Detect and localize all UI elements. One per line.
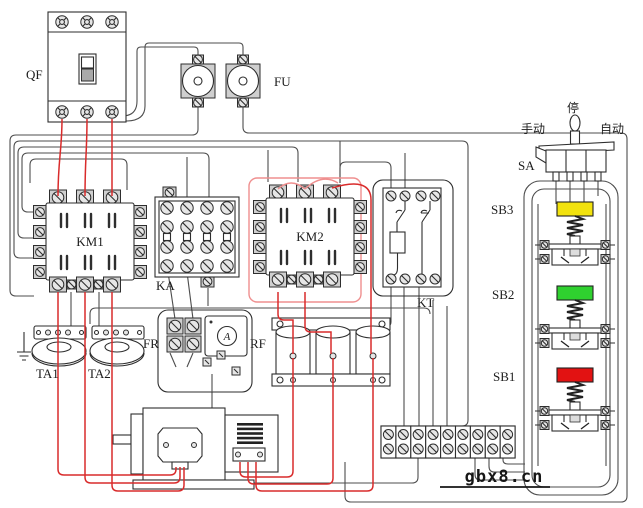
terminal-strip xyxy=(381,426,515,458)
label-ka: KA xyxy=(156,278,175,293)
label-km1: KM1 xyxy=(76,234,103,249)
label-qf: QF xyxy=(26,67,43,82)
label-km2: KM2 xyxy=(296,229,323,244)
label-kt: KT xyxy=(417,295,434,310)
watermark: gbx8.cn xyxy=(440,467,550,487)
ground-symbol xyxy=(17,332,31,360)
pushbutton-sb2 xyxy=(535,286,615,349)
label-auto: 自动 xyxy=(600,122,624,136)
label-ammeter: A xyxy=(223,331,231,343)
label-sb1: SB1 xyxy=(493,369,515,384)
time-relay-kt xyxy=(373,180,453,296)
label-fr: FR xyxy=(143,336,159,351)
pushbutton-sb3 xyxy=(535,202,615,265)
thermal-relay-fr xyxy=(158,310,252,392)
label-sb3: SB3 xyxy=(491,202,513,217)
label-stop: 停 xyxy=(567,100,579,115)
ct-ta2 xyxy=(90,326,144,366)
relay-ka xyxy=(155,187,239,287)
label-manual: 手动 xyxy=(521,122,545,136)
label-rf: RF xyxy=(250,336,266,351)
fuse-fu2 xyxy=(226,55,260,107)
wiring-diagram-page: QF FU KM1 KM2 KA KT FR RF TA1 TA2 SA SB3… xyxy=(0,0,643,508)
motor-shaft xyxy=(113,435,131,444)
watermark-text: gbx8.cn xyxy=(465,467,544,487)
wiring-diagram: QF FU KM1 KM2 KA KT FR RF TA1 TA2 SA SB3… xyxy=(0,0,643,508)
fuse-fu1 xyxy=(181,55,215,107)
pushbutton-sb1 xyxy=(535,368,615,431)
label-sb2: SB2 xyxy=(492,287,514,302)
label-ta1: TA1 xyxy=(36,366,59,381)
motor-base xyxy=(133,480,254,489)
label-fu: FU xyxy=(274,74,291,89)
label-ta2: TA2 xyxy=(88,366,111,381)
label-sa: SA xyxy=(518,158,535,173)
ct-ta1 xyxy=(32,326,86,366)
qf-breaker xyxy=(48,12,126,122)
selector-knob xyxy=(570,115,580,131)
